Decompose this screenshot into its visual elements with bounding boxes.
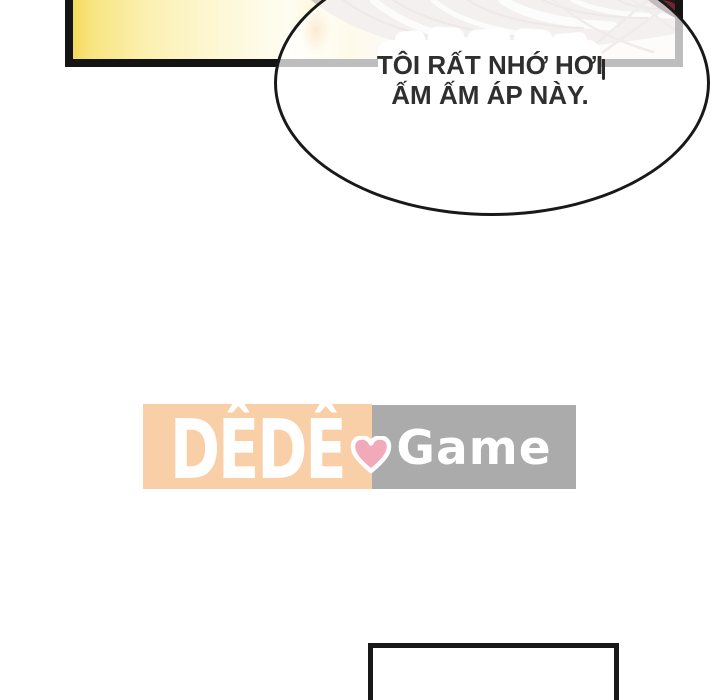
- bottom-comic-panel: [368, 643, 619, 700]
- watermark-game-text: Game: [396, 421, 551, 476]
- watermark-right-block: Game: [372, 405, 576, 489]
- watermark-brand-text: DÊDÊ: [170, 412, 345, 490]
- text-whiteout-patch: [468, 28, 511, 48]
- text-whiteout-patch: [394, 30, 425, 50]
- watermark-left-block: DÊDÊ: [143, 404, 372, 489]
- dialogue-text: TÔI RẤT NHỚ HƠI ẤM ẤM ÁP NÀY.: [335, 50, 645, 110]
- dialogue-line-2: ẤM ẤM ÁP NÀY.: [335, 80, 645, 110]
- text-whiteout-patch: [428, 26, 465, 48]
- comic-page: TÔI RẤT NHỚ HƠI ẤM ẤM ÁP NÀY. DÊDÊ Game: [0, 0, 720, 700]
- text-whiteout-patch: [513, 28, 552, 51]
- heart-icon: [350, 436, 392, 474]
- dialogue-line-1: TÔI RẤT NHỚ HƠI: [335, 50, 645, 80]
